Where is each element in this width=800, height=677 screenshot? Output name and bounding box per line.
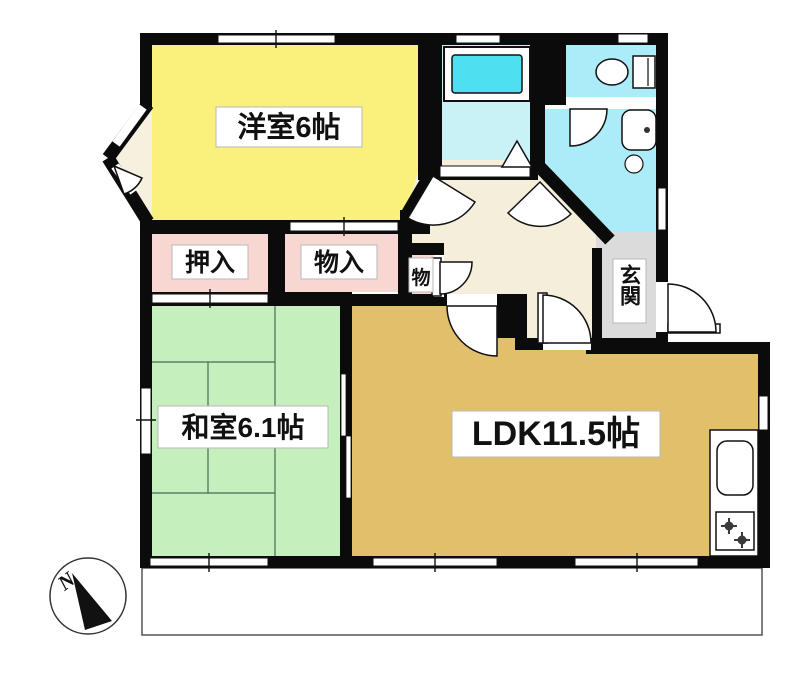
compass: N <box>50 558 126 634</box>
window-japanese-left <box>141 388 151 454</box>
sliding-door-japanese-ldk <box>346 436 351 498</box>
bathtub <box>452 55 522 93</box>
floor-plan-svg: 洋室6帖 押入 物入 物 和室6.1帖 LDK11.5帖 玄関 N <box>0 0 800 677</box>
japanese-room-label: 和室6.1帖 <box>182 411 305 443</box>
toilet-tank <box>633 56 655 88</box>
sliding-door-japanese-ldk <box>341 374 346 436</box>
washbasin <box>622 110 656 150</box>
balcony <box>142 568 762 635</box>
western-room-label: 洋室6帖 <box>237 110 340 144</box>
window-bath-top <box>456 35 500 43</box>
kitchen-sink <box>717 441 753 495</box>
ldk-label: LDK11.5帖 <box>472 415 640 453</box>
window-ldk-right <box>759 396 768 430</box>
closet-mono-label: 物 <box>411 266 430 289</box>
floor-plan-canvas: 洋室6帖 押入 物入 物 和室6.1帖 LDK11.5帖 玄関 N <box>0 0 800 677</box>
window-washroom-right <box>658 188 666 230</box>
kitchen-stove <box>716 512 754 550</box>
front-door-opening <box>656 282 668 332</box>
window-toilet-top <box>618 34 648 43</box>
toilet-bowl <box>596 59 628 85</box>
washroom-drain <box>625 155 643 173</box>
closet-monoire-label: 物入 <box>314 249 364 277</box>
ldk-door-opening-1 <box>447 294 497 306</box>
closet-oshiire-label: 押入 <box>185 249 235 277</box>
entrance-label: 玄関 <box>618 263 642 307</box>
washbasin-faucet <box>644 127 650 133</box>
